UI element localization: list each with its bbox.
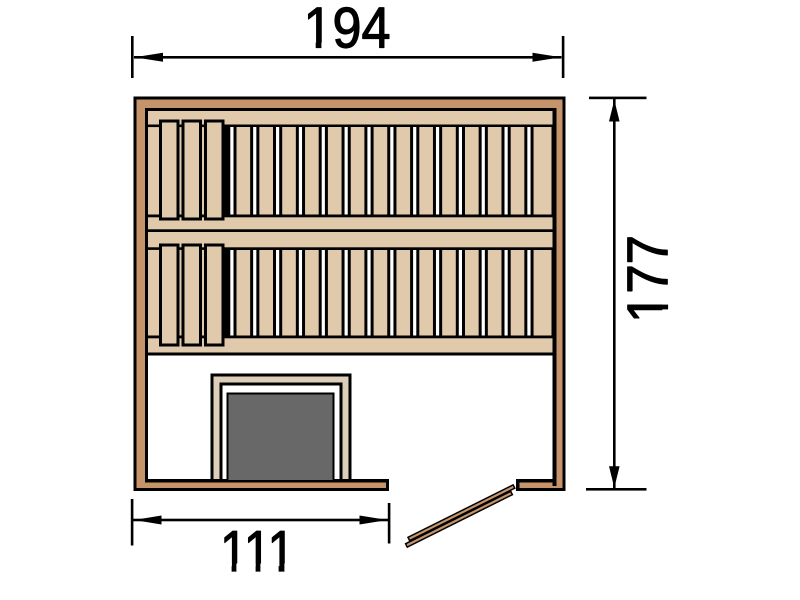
svg-text:111: 111 — [220, 520, 295, 584]
svg-text:177: 177 — [617, 235, 681, 323]
svg-text:194: 194 — [304, 0, 391, 61]
